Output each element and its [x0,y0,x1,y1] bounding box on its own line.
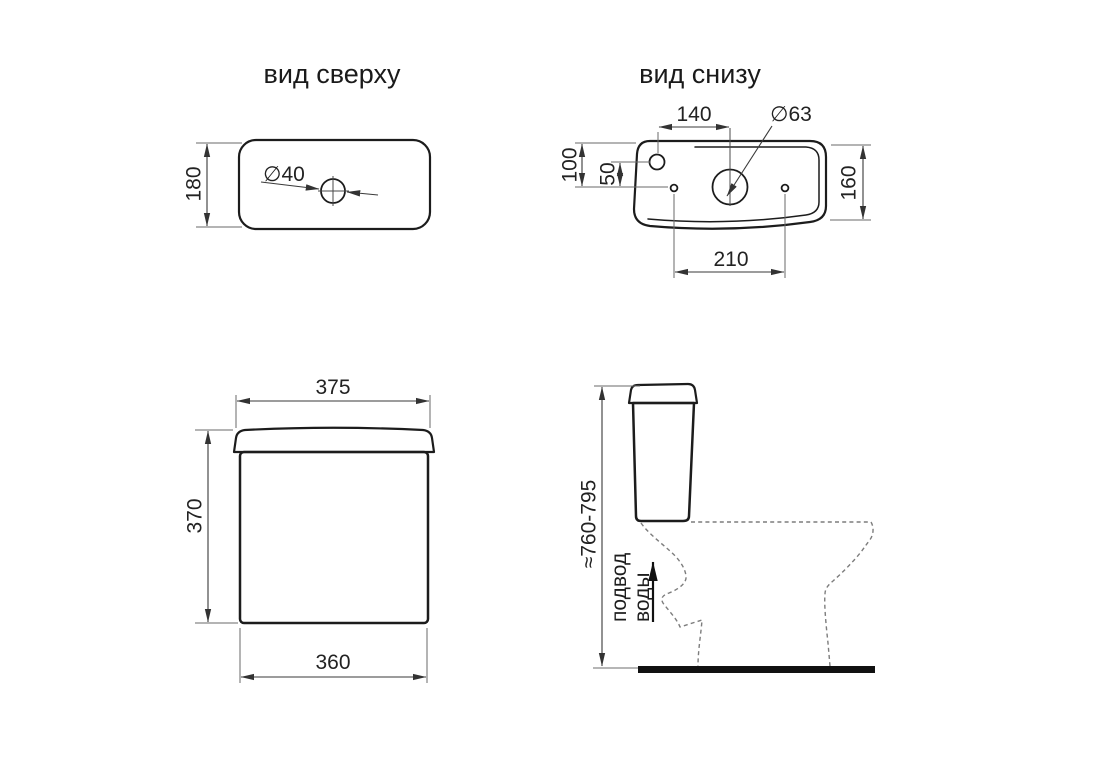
top-view-hole-diameter-label: ∅40 [263,163,305,186]
bottom-view-210-label: 210 [713,248,748,271]
water-supply-label-line2: воды [631,573,654,623]
front-view-370-label: 370 [184,498,207,533]
water-inlet-hole [650,155,665,170]
flush-hole-leader [727,126,772,196]
bottom-view-title: вид снизу [639,59,761,89]
bottom-view-50-label: 50 [597,162,620,185]
technical-drawing-page: вид сверху ∅40 180 вид снизу 140 ∅63 [0,0,1100,778]
toilet-silhouette-rear-edge [691,522,873,666]
top-view: вид сверху ∅40 180 [183,59,431,229]
side-view-height-label: ≈760-795 [578,480,601,569]
top-view-depth-label: 180 [183,166,206,201]
front-view-360-label: 360 [315,651,350,674]
top-view-title: вид сверху [264,59,401,89]
side-view: ≈760-795 подвод воды [578,384,876,673]
bottom-view-63-label: ∅63 [770,103,812,126]
bottom-view-140-label: 140 [676,103,711,126]
hole-leader-right [347,192,378,195]
bottom-view: вид снизу 140 ∅63 100 50 160 [559,59,872,278]
cistern-front-body [240,452,428,623]
bottom-view-100-label: 100 [559,147,582,182]
floor-bar [638,666,875,673]
water-supply-label-line1: подвод [608,553,631,622]
bottom-view-160-label: 160 [838,165,861,200]
front-view: 375 370 360 [184,376,435,683]
cistern-side-lid [629,384,697,403]
cistern-front-lid [234,428,434,452]
front-view-375-label: 375 [315,376,350,399]
bolt-hole-left [671,185,678,192]
bolt-hole-right [782,185,789,192]
cistern-side-body [633,403,694,521]
cistern-drawing-svg: вид сверху ∅40 180 вид снизу 140 ∅63 [0,0,1100,778]
